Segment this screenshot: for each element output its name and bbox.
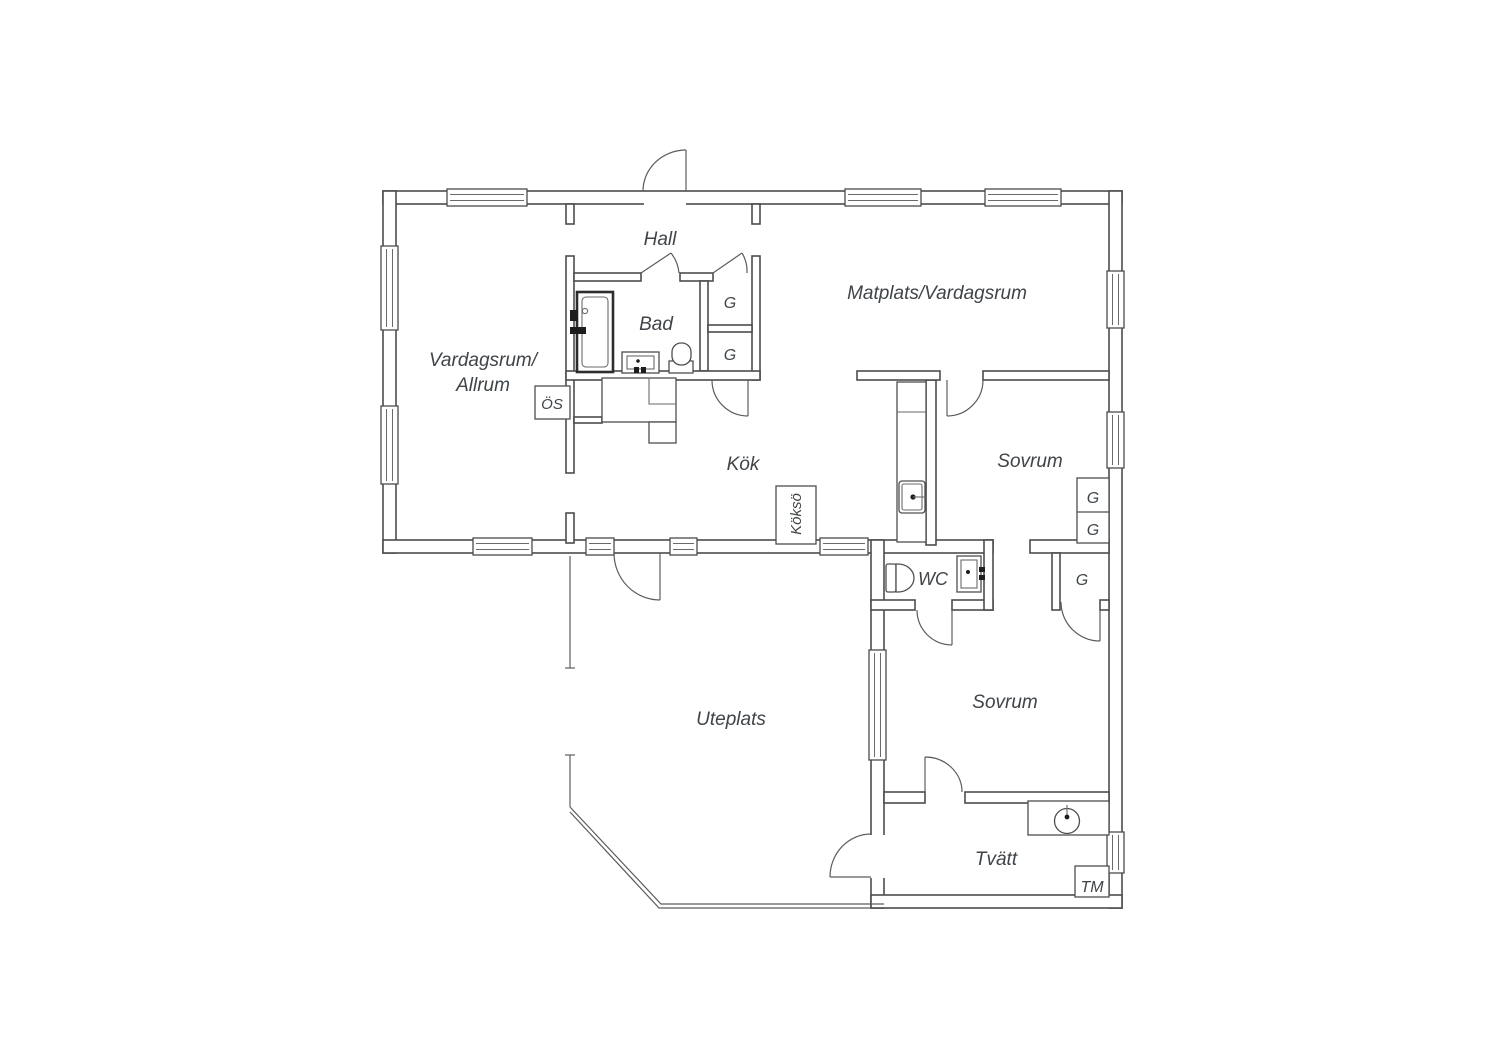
window (586, 538, 614, 555)
laundry-patio-door (830, 834, 871, 877)
room-label-bad: Bad (639, 314, 674, 335)
room-label-matplats: Matplats/Vardagsrum (847, 283, 1027, 304)
window (869, 650, 886, 760)
wc-toilet-icon (886, 564, 914, 592)
window (670, 538, 697, 555)
label-washing-machine: TM (1080, 879, 1104, 896)
closet2-door (712, 380, 748, 416)
bathroom-sink-icon (622, 352, 659, 373)
room-label-kok: Kök (727, 454, 761, 475)
label-wardrobe-2: G (1087, 522, 1099, 539)
bathtub-icon (570, 292, 613, 372)
label-closet-1: G (724, 295, 736, 312)
bedroom2-laundry-door (925, 757, 962, 792)
bedroom1-door (947, 380, 983, 416)
window (381, 406, 398, 484)
wall-closet1-closet2-divider (708, 325, 752, 332)
room-label-hall: Hall (644, 229, 678, 250)
room-label-uteplats: Uteplats (696, 709, 766, 730)
closet3-door (1061, 602, 1100, 641)
window (845, 189, 921, 206)
wall-kitchen-ledge (574, 417, 602, 423)
label-closet-3: G (1076, 572, 1088, 589)
wall-bath-left (566, 256, 574, 473)
wc-door (917, 610, 952, 645)
label-fireplace: ÖS (541, 395, 563, 413)
wall-bedroom1-left-seg (857, 371, 940, 380)
window (473, 538, 532, 555)
entrance-door (643, 150, 686, 191)
kitchen-sink-icon (899, 481, 926, 513)
closet1-door (713, 253, 747, 273)
wall-bedroom2-bottom-left (884, 792, 925, 803)
patio-door (614, 553, 660, 600)
fixtures (535, 292, 1109, 897)
wall-hall-stub-right (752, 204, 760, 224)
wall-kitchen-sink-wall (926, 380, 936, 545)
window (381, 246, 398, 330)
entrance-opening (644, 196, 686, 205)
wall-exterior-left (383, 191, 396, 553)
room-label-vardagsrum-line2: Allrum (455, 375, 510, 396)
bathroom-toilet-icon (669, 343, 693, 373)
floor-plan: Hall Bad Vardagsrum/ Allrum Matplats/Var… (0, 0, 1500, 1060)
bathroom-door (641, 253, 679, 273)
wall-bath-closet-divider (700, 281, 708, 371)
kitchen-sink-counter-icon (897, 382, 926, 542)
wall-bath-top-1 (574, 273, 641, 281)
room-label-vardagsrum-line1: Vardagsrum/ (429, 350, 539, 371)
room-label-tvatt: Tvätt (975, 849, 1018, 870)
wall-wc-right (984, 540, 993, 610)
room-label-sovrum-2: Sovrum (972, 692, 1037, 713)
window (985, 189, 1061, 206)
window (447, 189, 527, 206)
wall-hall-stub-left (566, 204, 574, 224)
wall-closet3-bottom-return (1100, 600, 1109, 610)
floor-plan-canvas: Hall Bad Vardagsrum/ Allrum Matplats/Var… (0, 0, 1500, 1060)
wall-bedroom1-right-seg (983, 371, 1109, 380)
window (1107, 412, 1124, 468)
room-label-wc: WC (918, 569, 949, 589)
wall-bath-right (752, 256, 760, 380)
label-kitchen-island: Köksö (788, 493, 805, 535)
window (1107, 271, 1124, 328)
laundry-patio-door-opening (869, 835, 886, 878)
label-wardrobe-1: G (1087, 490, 1099, 507)
wc-sink-icon (957, 556, 985, 592)
label-closet-2: G (724, 347, 736, 364)
wall-closet3-left (1052, 553, 1060, 610)
window (820, 538, 868, 555)
wall-wc-bottom-left (871, 600, 915, 610)
wall-bath-top-2 (680, 273, 713, 281)
doors (614, 150, 1100, 877)
wall-kitchen-left-seg (566, 513, 574, 543)
room-label-sovrum-1: Sovrum (997, 451, 1062, 472)
kitchen-counter-icon (602, 378, 676, 443)
